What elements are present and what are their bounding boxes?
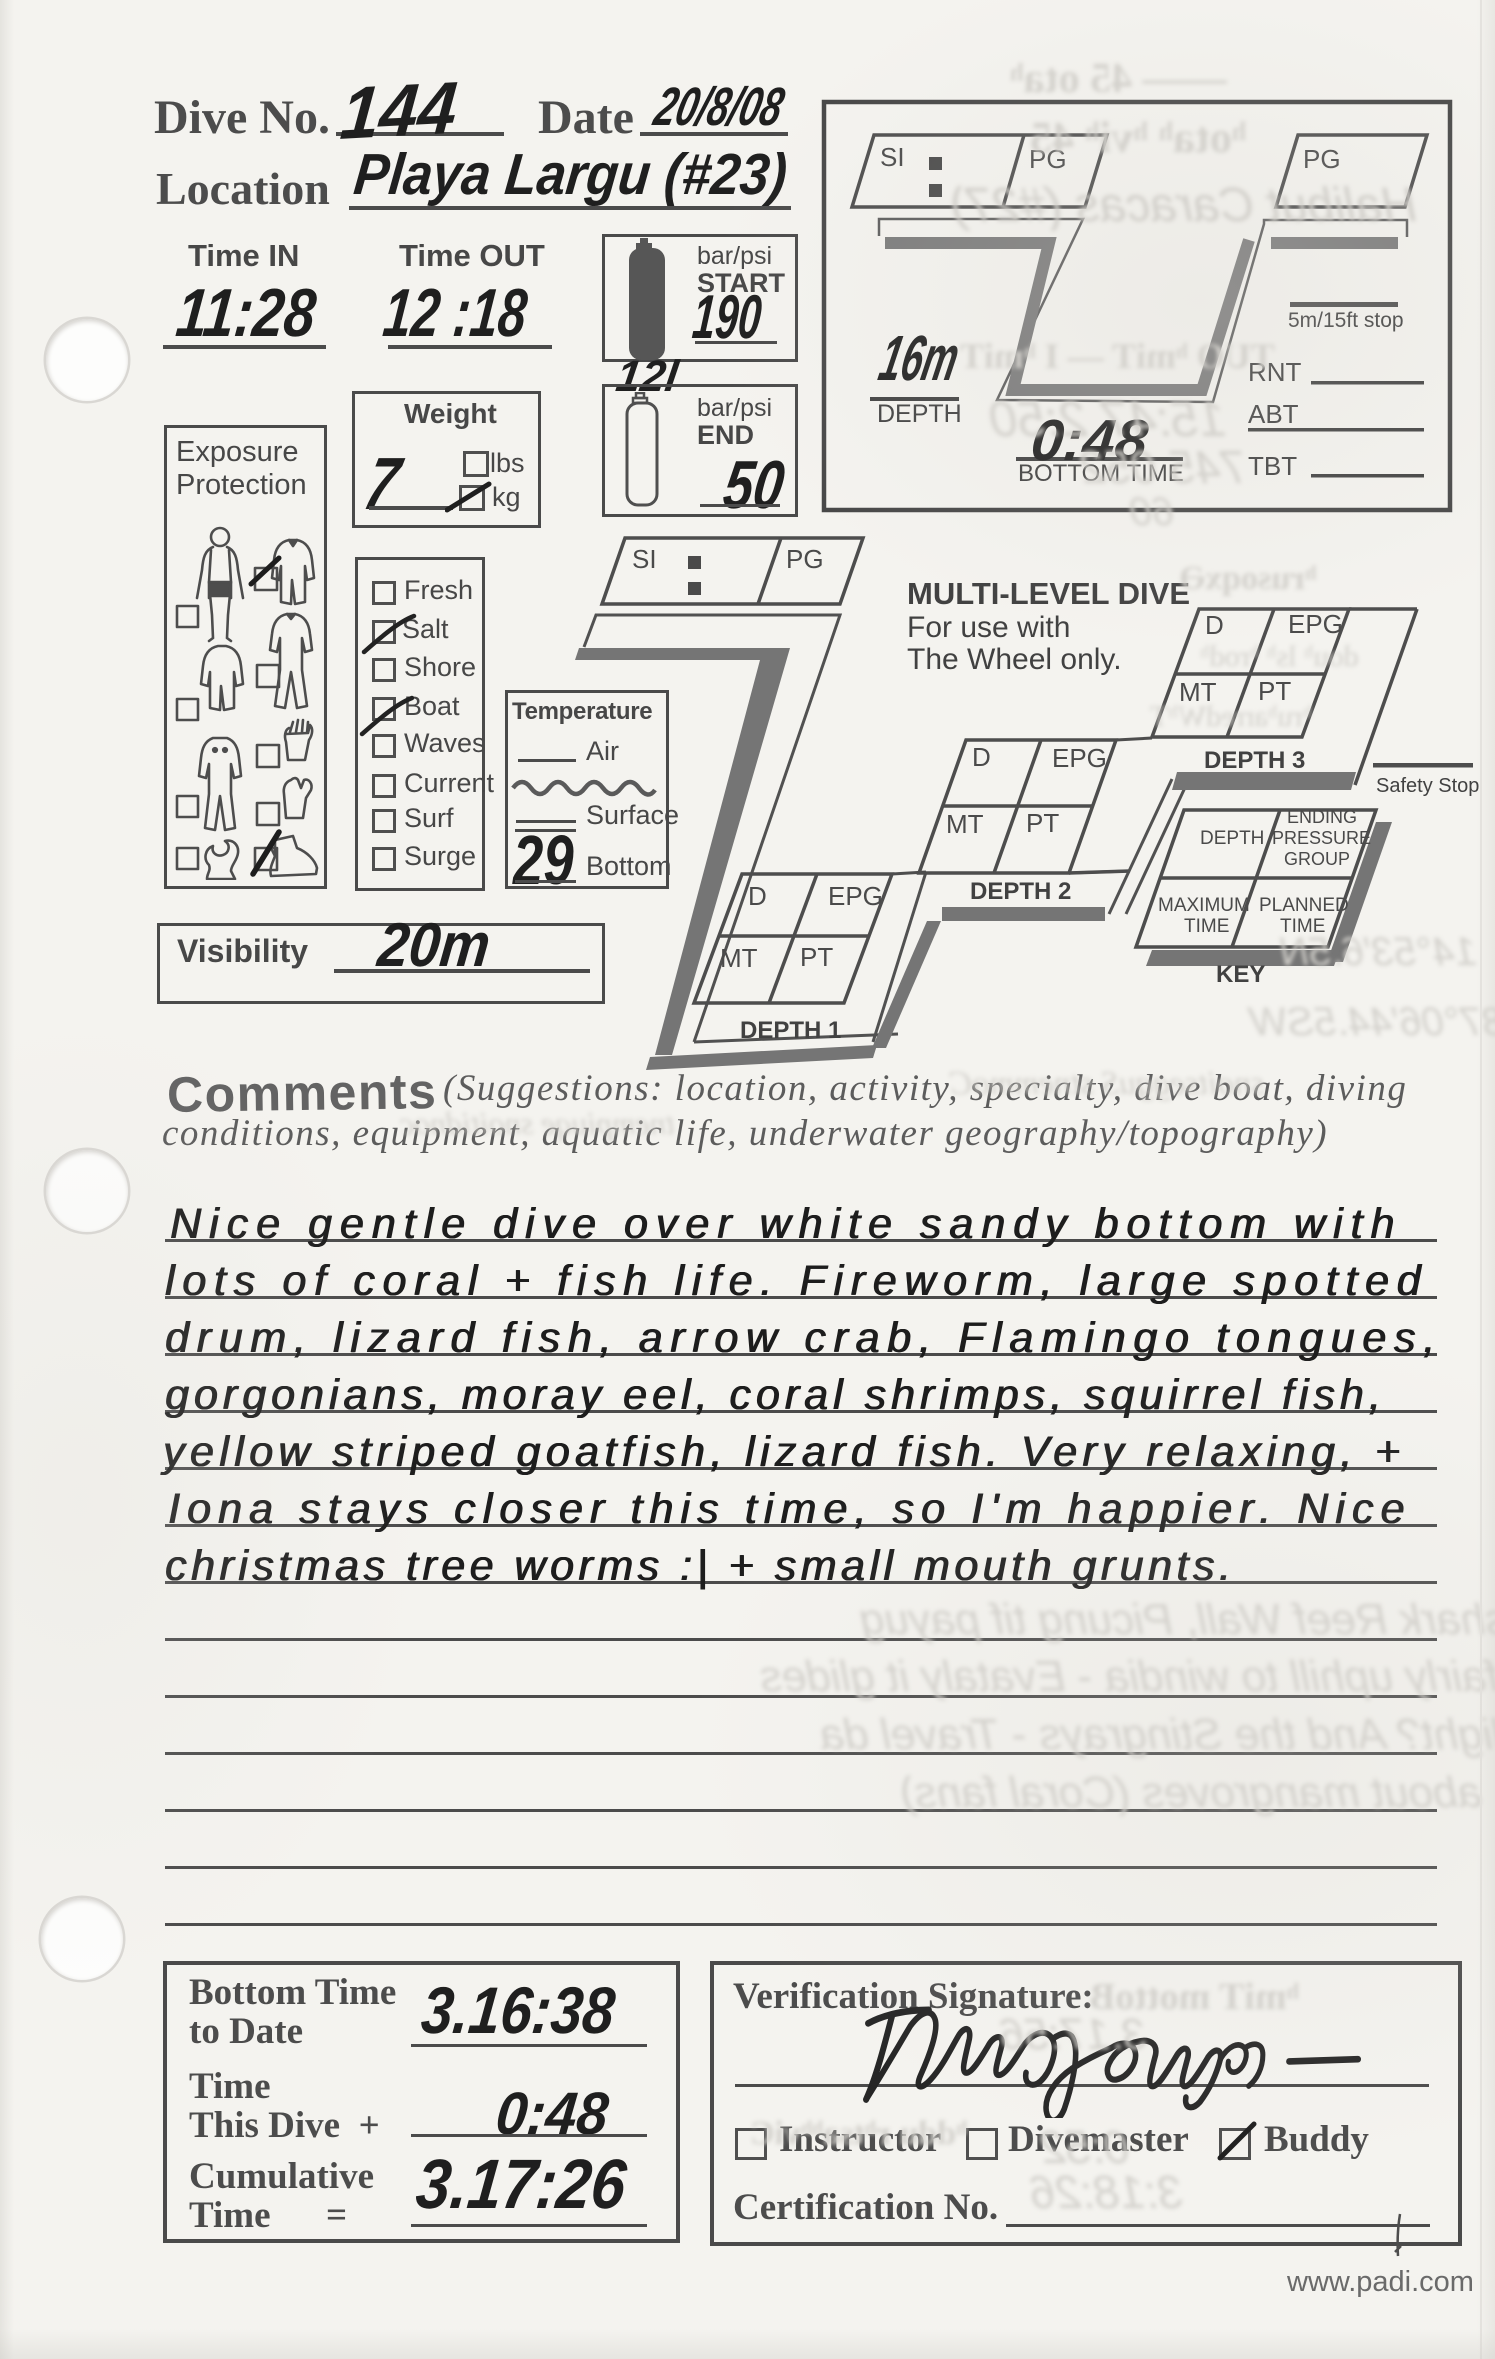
svg-text:EPG: EPG [1052, 743, 1107, 773]
svg-text:ABT: ABT [1248, 399, 1299, 429]
svg-text:DEPTH 2: DEPTH 2 [970, 878, 1071, 905]
svg-text:ENDING: ENDING [1287, 807, 1357, 827]
svg-text:D: D [972, 742, 991, 772]
svg-text:DEPTH: DEPTH [1200, 828, 1264, 849]
svg-text:DEPTH: DEPTH [877, 400, 962, 428]
svg-text:D: D [1205, 610, 1224, 640]
svg-text:PLANNED: PLANNED [1259, 895, 1349, 916]
svg-text:GROUP: GROUP [1284, 849, 1350, 869]
svg-text:TIME: TIME [1184, 916, 1229, 937]
svg-text:DEPTH 3: DEPTH 3 [1204, 747, 1305, 774]
svg-text:5m/15ft stop: 5m/15ft stop [1288, 309, 1404, 332]
svg-text:MULTI-LEVEL DIVE: MULTI-LEVEL DIVE [907, 576, 1190, 611]
svg-text:MT: MT [720, 943, 758, 973]
svg-text:TBT: TBT [1248, 451, 1297, 481]
svg-text:PT: PT [800, 942, 833, 972]
svg-text:For use with: For use with [907, 611, 1070, 644]
svg-text:EPG: EPG [828, 881, 883, 911]
svg-text:EPG: EPG [1288, 609, 1343, 639]
svg-text:KEY: KEY [1216, 961, 1265, 988]
svg-text:MAXIMUM: MAXIMUM [1158, 895, 1250, 916]
svg-text:PG: PG [786, 544, 824, 574]
svg-text:SI: SI [880, 142, 905, 172]
svg-text:DEPTH 1: DEPTH 1 [740, 1017, 841, 1044]
svg-text:D: D [748, 881, 767, 911]
svg-text:PRESSURE: PRESSURE [1272, 828, 1371, 848]
svg-text:PG: PG [1303, 144, 1341, 174]
svg-text:MT: MT [946, 809, 984, 839]
svg-text:Safety Stop: Safety Stop [1376, 775, 1479, 797]
svg-text:The Wheel only.: The Wheel only. [907, 643, 1122, 676]
svg-text:SI: SI [632, 544, 657, 574]
svg-text:PT: PT [1026, 808, 1059, 838]
